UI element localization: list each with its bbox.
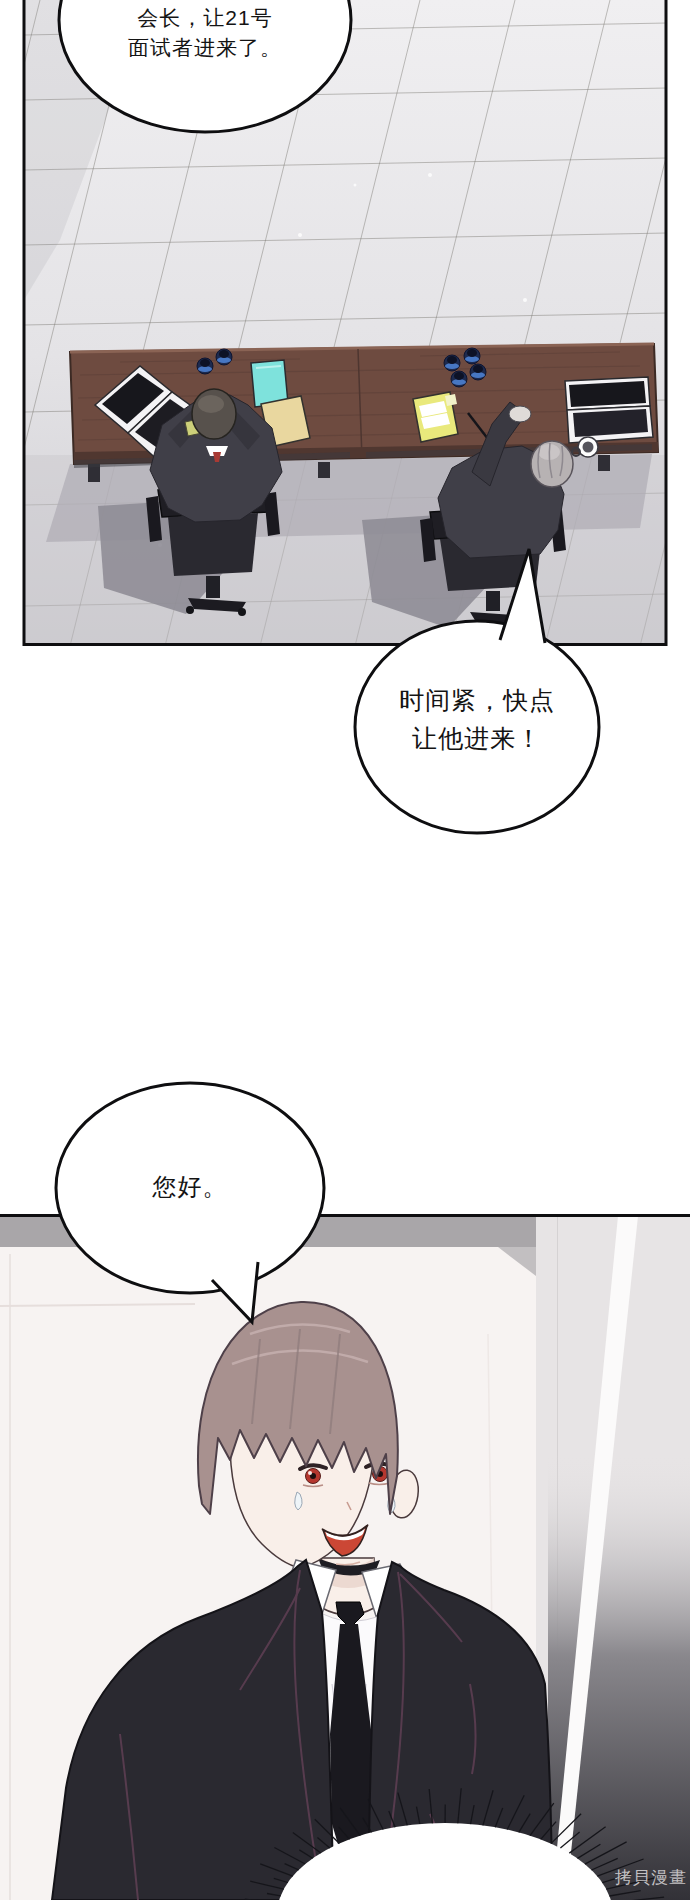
speech-line: 时间紧，快点 xyxy=(358,681,596,719)
speech-line: 让他进来！ xyxy=(358,719,596,757)
speech-text-bottom: 您好。 xyxy=(90,1170,290,1204)
doorway-panel xyxy=(0,1214,690,1900)
yellow-folder xyxy=(413,392,458,442)
site-watermark: 拷貝漫畫 xyxy=(615,1866,687,1889)
speech-text-top: 会长，让21号 面试者进来了。 xyxy=(85,3,325,63)
speech-line: 您好。 xyxy=(90,1170,290,1204)
comic-page: 会长，让21号 面试者进来了。 时间紧，快点 让他进来！ 您好。 拷貝漫畫 xyxy=(0,0,690,1900)
laptop-right xyxy=(565,377,653,443)
speech-text-middle: 时间紧，快点 让他进来！ xyxy=(358,681,596,757)
speech-line: 面试者进来了。 xyxy=(85,33,325,63)
comic-artwork xyxy=(0,0,690,1900)
speech-line: 会长，让21号 xyxy=(85,3,325,33)
